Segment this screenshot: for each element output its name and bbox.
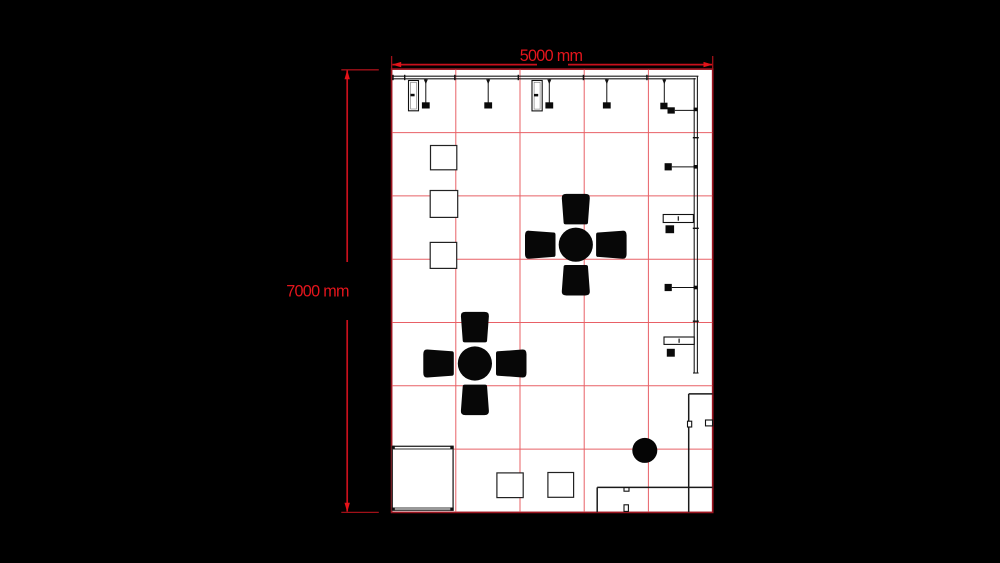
svg-text:7000 mm: 7000 mm [286,282,349,300]
svg-text:5000 mm: 5000 mm [520,47,583,65]
